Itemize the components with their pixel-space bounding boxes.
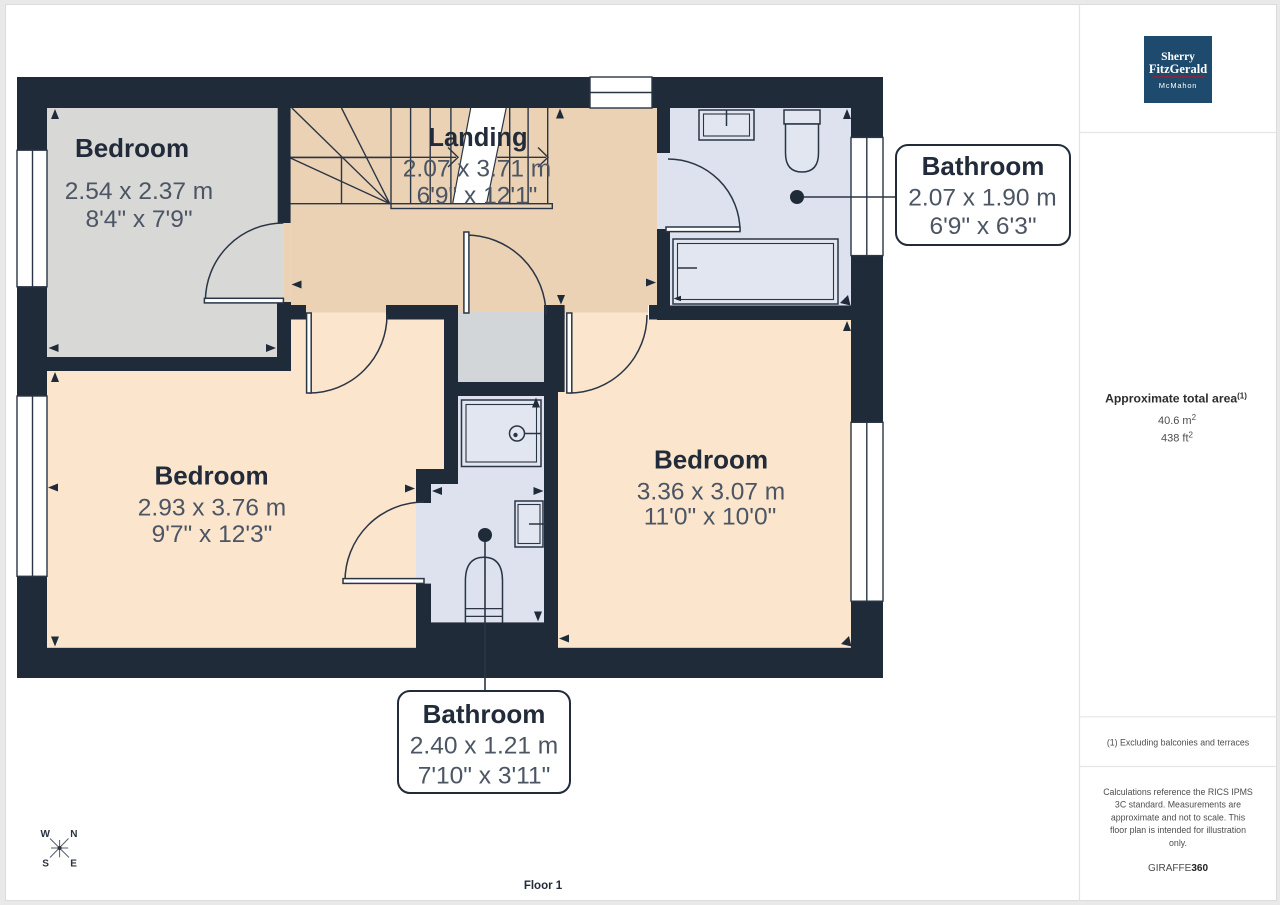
svg-text:GIRAFFE360: GIRAFFE360 <box>1148 863 1208 874</box>
svg-text:only.: only. <box>1169 838 1187 848</box>
svg-text:Bedroom: Bedroom <box>154 461 268 491</box>
svg-text:6'9" x 12'1": 6'9" x 12'1" <box>417 183 538 210</box>
svg-text:Bathroom: Bathroom <box>922 151 1045 181</box>
svg-text:Bathroom: Bathroom <box>423 699 546 729</box>
svg-text:9'7" x 12'3": 9'7" x 12'3" <box>152 521 273 548</box>
svg-text:2.07 x 3.71 m: 2.07 x 3.71 m <box>403 156 551 183</box>
svg-text:S: S <box>42 859 49 870</box>
svg-text:McMahon: McMahon <box>1159 81 1198 90</box>
svg-text:approximate and not to scale.: approximate and not to scale. This <box>1111 812 1246 822</box>
svg-text:8'4" x 7'9": 8'4" x 7'9" <box>85 206 192 233</box>
svg-text:40.6 m2: 40.6 m2 <box>1158 413 1197 427</box>
svg-text:2.07 x 1.90 m: 2.07 x 1.90 m <box>908 185 1056 212</box>
svg-text:E: E <box>70 859 77 870</box>
svg-text:Approximate total area(1): Approximate total area(1) <box>1105 392 1247 406</box>
svg-text:Landing: Landing <box>428 124 527 152</box>
svg-text:2.40 x 1.21 m: 2.40 x 1.21 m <box>410 733 558 760</box>
svg-text:Calculations reference the RIC: Calculations reference the RICS IPMS <box>1103 787 1253 797</box>
svg-text:(1) Excluding balconies and te: (1) Excluding balconies and terraces <box>1107 738 1250 748</box>
svg-text:Bedroom: Bedroom <box>654 445 768 475</box>
svg-text:Bedroom: Bedroom <box>75 133 189 163</box>
svg-text:Floor 1: Floor 1 <box>524 880 563 892</box>
svg-text:11'0" x 10'0": 11'0" x 10'0" <box>644 504 777 531</box>
svg-text:FitzGerald: FitzGerald <box>1149 62 1207 76</box>
svg-text:2.54 x 2.37 m: 2.54 x 2.37 m <box>65 178 213 205</box>
svg-text:W: W <box>40 829 50 840</box>
svg-text:floor plan is intended for ill: floor plan is intended for illustration <box>1110 825 1246 835</box>
svg-text:3C standard. Measurements are: 3C standard. Measurements are <box>1115 800 1241 810</box>
svg-text:3.36 x 3.07 m: 3.36 x 3.07 m <box>637 479 785 506</box>
svg-text:N: N <box>70 829 77 840</box>
svg-text:2.93 x 3.76 m: 2.93 x 3.76 m <box>138 495 286 522</box>
svg-text:7'10" x 3'11": 7'10" x 3'11" <box>418 763 551 790</box>
svg-text:6'9" x 6'3": 6'9" x 6'3" <box>929 213 1036 240</box>
